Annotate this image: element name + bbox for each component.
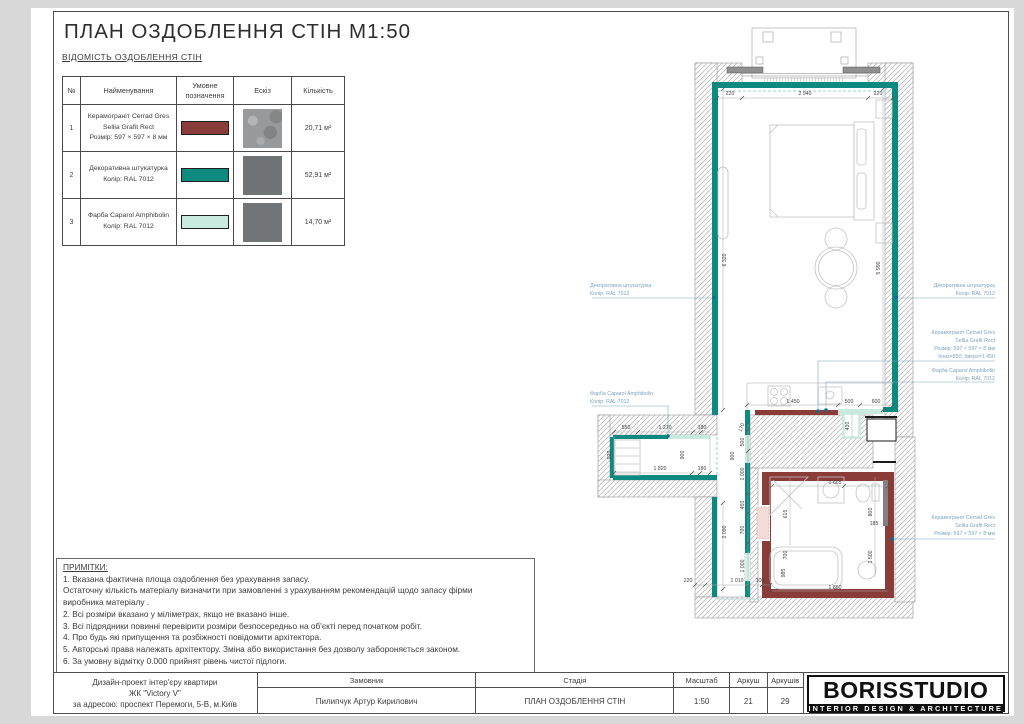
dim-label: 2 940: [799, 91, 812, 97]
note-line: виробника матеріалу .: [63, 597, 528, 609]
dim-label: 800: [868, 508, 874, 517]
svg-text:Колір: RAL 7012: Колір: RAL 7012: [590, 291, 629, 297]
row-num: 2: [63, 152, 81, 199]
material-sketch: [243, 203, 282, 242]
dim-label: 550: [622, 425, 631, 431]
svg-text:Розмір: 597 × 597 × 8 мм: Розмір: 597 × 597 × 8 мм: [934, 346, 995, 352]
svg-text:hниз=850, hверх=1 450: hниз=850, hверх=1 450: [938, 354, 995, 360]
col-sketch: Ескіз: [234, 77, 292, 105]
material-sketch: [243, 156, 282, 195]
stage-cell: Стадія ПЛАН ОЗДОБЛЕННЯ СТІН: [475, 673, 673, 714]
customer-cell: Замовник Пилипчук Артур Кирилович: [257, 673, 476, 714]
sheet-value: 21: [730, 688, 767, 714]
annotation-right-tile-bathroom: Керамограніт Cerrad Gres Sellia Grafit R…: [932, 515, 996, 537]
bed: [770, 125, 854, 217]
dim-label: 615: [783, 510, 789, 519]
dim-label: 430: [845, 422, 851, 431]
notes-title: ПРИМІТКИ:: [63, 562, 528, 574]
svg-text:Керамограніт Cerrad Gres: Керамограніт Cerrad Gres: [932, 515, 996, 521]
symbol-cell: [177, 199, 234, 246]
scale-cell: Масштаб 1:50: [673, 673, 729, 714]
svg-text:Фарба Caparol Amphibolin: Фарба Caparol Amphibolin: [590, 391, 653, 397]
dim-label: 1 270: [659, 425, 672, 431]
studio-logo: BORISSTUDIO INTERIOR DESIGN & ARCHITECTU…: [807, 675, 1005, 712]
kitchen-sink: [818, 387, 842, 404]
dim-label: 5 990: [876, 261, 882, 274]
dim-label: 2 090: [722, 525, 728, 538]
svg-text:Керамограніт Cerrad Gres: Керамограніт Cerrad Gres: [932, 330, 996, 336]
svg-text:Колір: RAL 7012: Колір: RAL 7012: [590, 399, 629, 405]
dim-label: 900: [730, 452, 736, 461]
logo-text: BORISSTUDIO: [809, 677, 1003, 704]
material-name: Декоративна штукатурка Колір: RAL 7012: [81, 152, 177, 199]
qty-cell: 52,91 м²: [292, 152, 345, 199]
dim-label: 185: [870, 521, 879, 527]
floor-plan: 220 2 940 220 6 320 5 990 1 450 500 600 …: [580, 25, 1020, 625]
material-sketch: [243, 109, 282, 148]
table-row: 3 Фарба Caparol Amphibolin Колір: RAL 70…: [63, 199, 345, 246]
page-title: ПЛАН ОЗДОБЛЕННЯ СТІН М1:50: [64, 20, 411, 44]
project-info: Дизайн-проект інтер'єру квартири ЖК "Vic…: [53, 673, 257, 714]
dim-label: 6 320: [722, 253, 728, 266]
finish-table-caption: ВІДОМІСТЬ ОЗДОБЛЕННЯ СТІН: [62, 52, 202, 62]
sheets-label: Аркушів: [768, 673, 803, 688]
dim-label: 700: [740, 526, 746, 535]
annotation-left-plaster: Декоративна штукатурка Колір: RAL 7012: [590, 283, 651, 297]
dim-label: 1 000: [740, 559, 746, 572]
svg-text:Декоративна штукатурка: Декоративна штукатурка: [590, 283, 651, 289]
svg-text:Декоративна штукатурка: Декоративна штукатурка: [934, 283, 995, 289]
svg-text:Фарба Caparol Amphibolin: Фарба Caparol Amphibolin: [932, 368, 995, 374]
sketch-cell: [234, 105, 292, 152]
round-table: [815, 247, 857, 289]
dim-label: 1 000: [740, 467, 746, 480]
note-line: 4. Про будь які припущення та розбіжност…: [63, 632, 528, 644]
qty-cell: 20,71 м²: [292, 105, 345, 152]
title-block: Дизайн-проект інтер'єру квартири ЖК "Vic…: [53, 672, 1008, 714]
stage-value: ПЛАН ОЗДОБЛЕННЯ СТІН: [476, 688, 673, 714]
dim-label: 500: [740, 438, 746, 447]
svg-text:Sellia Grafit Rect: Sellia Grafit Rect: [955, 338, 995, 344]
dim-label: 220: [726, 91, 735, 97]
notes-box: ПРИМІТКИ: 1. Вказана фактична площа оздо…: [56, 558, 535, 673]
svg-text:Розмір: 597 × 597 × 8 мм: Розмір: 597 × 597 × 8 мм: [934, 531, 995, 537]
dim-label: 1 010: [731, 578, 744, 584]
dim-label: 1 820: [654, 466, 667, 472]
scale-value: 1:50: [674, 688, 729, 714]
material-name: Керамограніт Cerrad Gres Sellia Grafit R…: [81, 105, 177, 152]
col-num: №: [63, 77, 81, 105]
stage-label: Стадія: [476, 673, 673, 688]
window: [727, 67, 880, 83]
project-line: за адресою: проспект Перемоги, 5-В, м.Ки…: [73, 699, 237, 710]
scale-label: Масштаб: [674, 673, 729, 688]
note-line: 2. Всі розміри вказано у міліметрах, якщ…: [63, 609, 528, 621]
note-line: 1. Вказана фактична площа оздоблення без…: [63, 574, 528, 586]
dim-label: 500: [845, 399, 854, 405]
dim-label: 220: [684, 578, 693, 584]
material-name: Фарба Caparol Amphibolin Колір: RAL 7012: [81, 199, 177, 246]
finish-table: № Найменування Умовне позначення Ескіз К…: [62, 76, 345, 246]
dim-label: 180: [698, 425, 707, 431]
dim-label: 1 450: [787, 399, 800, 405]
sketch-cell: [234, 152, 292, 199]
logo-cell: BORISSTUDIO INTERIOR DESIGN & ARCHITECTU…: [803, 673, 1008, 714]
dim-label: 900: [680, 451, 686, 460]
col-qty: Кількість: [292, 77, 345, 105]
symbol-cell: [177, 105, 234, 152]
sketch-cell: [234, 199, 292, 246]
sheets-value: 29: [768, 688, 803, 714]
header-row: № Найменування Умовне позначення Ескіз К…: [63, 77, 345, 105]
project-line: Дизайн-проект інтер'єру квартири: [92, 677, 217, 688]
note-line: Остаточну кількість матеріалу визначити …: [63, 585, 528, 597]
svg-text:Колір: RAL 7012: Колір: RAL 7012: [956, 376, 995, 382]
dim-label: 1 500: [868, 550, 874, 563]
balcony: [752, 28, 856, 78]
sheet-label: Аркуш: [730, 673, 767, 688]
table-row: 2 Декоративна штукатурка Колір: RAL 7012…: [63, 152, 345, 199]
annotation-right-tile-kitchen: Керамограніт Cerrad Gres Sellia Grafit R…: [932, 330, 996, 360]
dim-label: 220: [874, 91, 883, 97]
dim-label: 700: [783, 551, 789, 560]
dim-label: 920: [607, 451, 613, 460]
dim-label: 450: [740, 501, 746, 510]
logo-subtitle: INTERIOR DESIGN & ARCHITECTURE: [809, 704, 1003, 713]
sheet-cell: Аркуш 21: [729, 673, 767, 714]
col-name: Найменування: [81, 77, 177, 105]
row-num: 1: [63, 105, 81, 152]
color-swatch: [181, 121, 229, 135]
symbol-cell: [177, 152, 234, 199]
customer-label: Замовник: [258, 673, 476, 688]
project-line: ЖК "Victory V": [129, 688, 181, 699]
dim-label: 1 850: [829, 585, 842, 591]
dim-label: 1 665: [829, 480, 842, 486]
note-line: 3. Всі підрядники повинні перевірити роз…: [63, 621, 528, 633]
wardrobe: [615, 440, 640, 475]
customer-value: Пилипчук Артур Кирилович: [258, 688, 476, 714]
dim-label: 100: [756, 578, 765, 584]
svg-text:Sellia Grafit Rect: Sellia Grafit Rect: [955, 523, 995, 529]
dim-label: 985: [781, 569, 787, 578]
dim-label: 600: [872, 399, 881, 405]
row-num: 3: [63, 199, 81, 246]
qty-cell: 14,70 м²: [292, 199, 345, 246]
sheets-cell: Аркушів 29: [767, 673, 803, 714]
dim-label: 180: [698, 466, 707, 472]
annotation-right-plaster: Декоративна штукатурка Колір: RAL 7012: [934, 283, 995, 297]
table-row: 1 Керамограніт Cerrad Gres Sellia Grafit…: [63, 105, 345, 152]
svg-text:Колір: RAL 7012: Колір: RAL 7012: [956, 291, 995, 297]
color-swatch: [181, 215, 229, 229]
note-line: 5. Авторські права належать архітектору.…: [63, 644, 528, 656]
annotation-left-paint: Фарба Caparol Amphibolin Колір: RAL 7012: [590, 391, 653, 405]
col-symbol: Умовне позначення: [177, 77, 234, 105]
color-swatch: [181, 168, 229, 182]
note-line: 6. За умовну відмітку 0.000 прийнят ріве…: [63, 656, 528, 668]
annotation-right-paint: Фарба Caparol Amphibolin Колір: RAL 7012: [932, 368, 995, 382]
